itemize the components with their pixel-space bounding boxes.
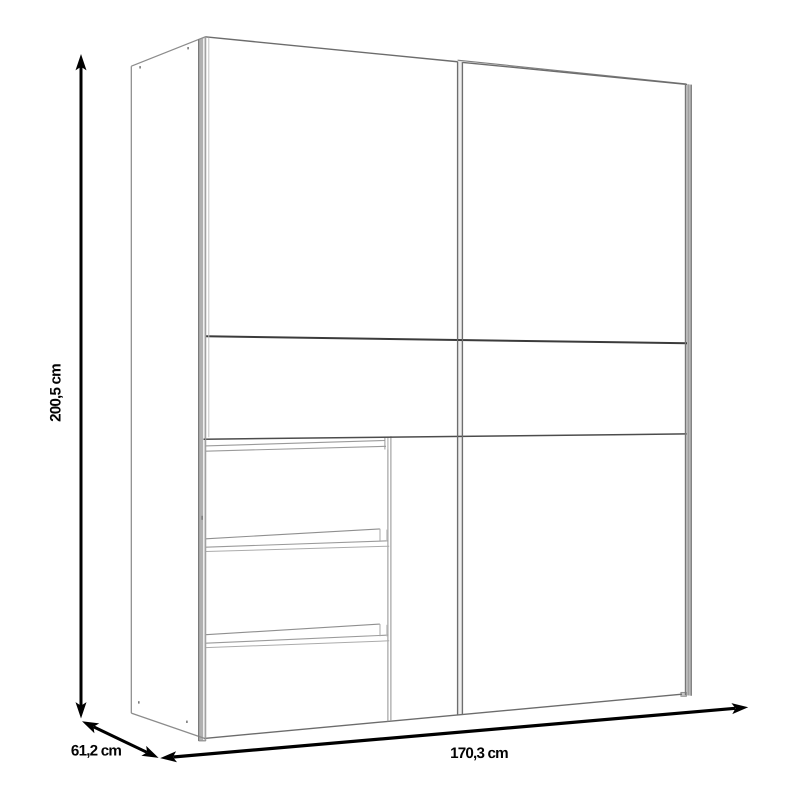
svg-text:170,3 cm: 170,3 cm	[450, 745, 508, 762]
svg-text:61,2 cm: 61,2 cm	[71, 743, 121, 760]
svg-text:200,5 cm: 200,5 cm	[48, 364, 65, 422]
